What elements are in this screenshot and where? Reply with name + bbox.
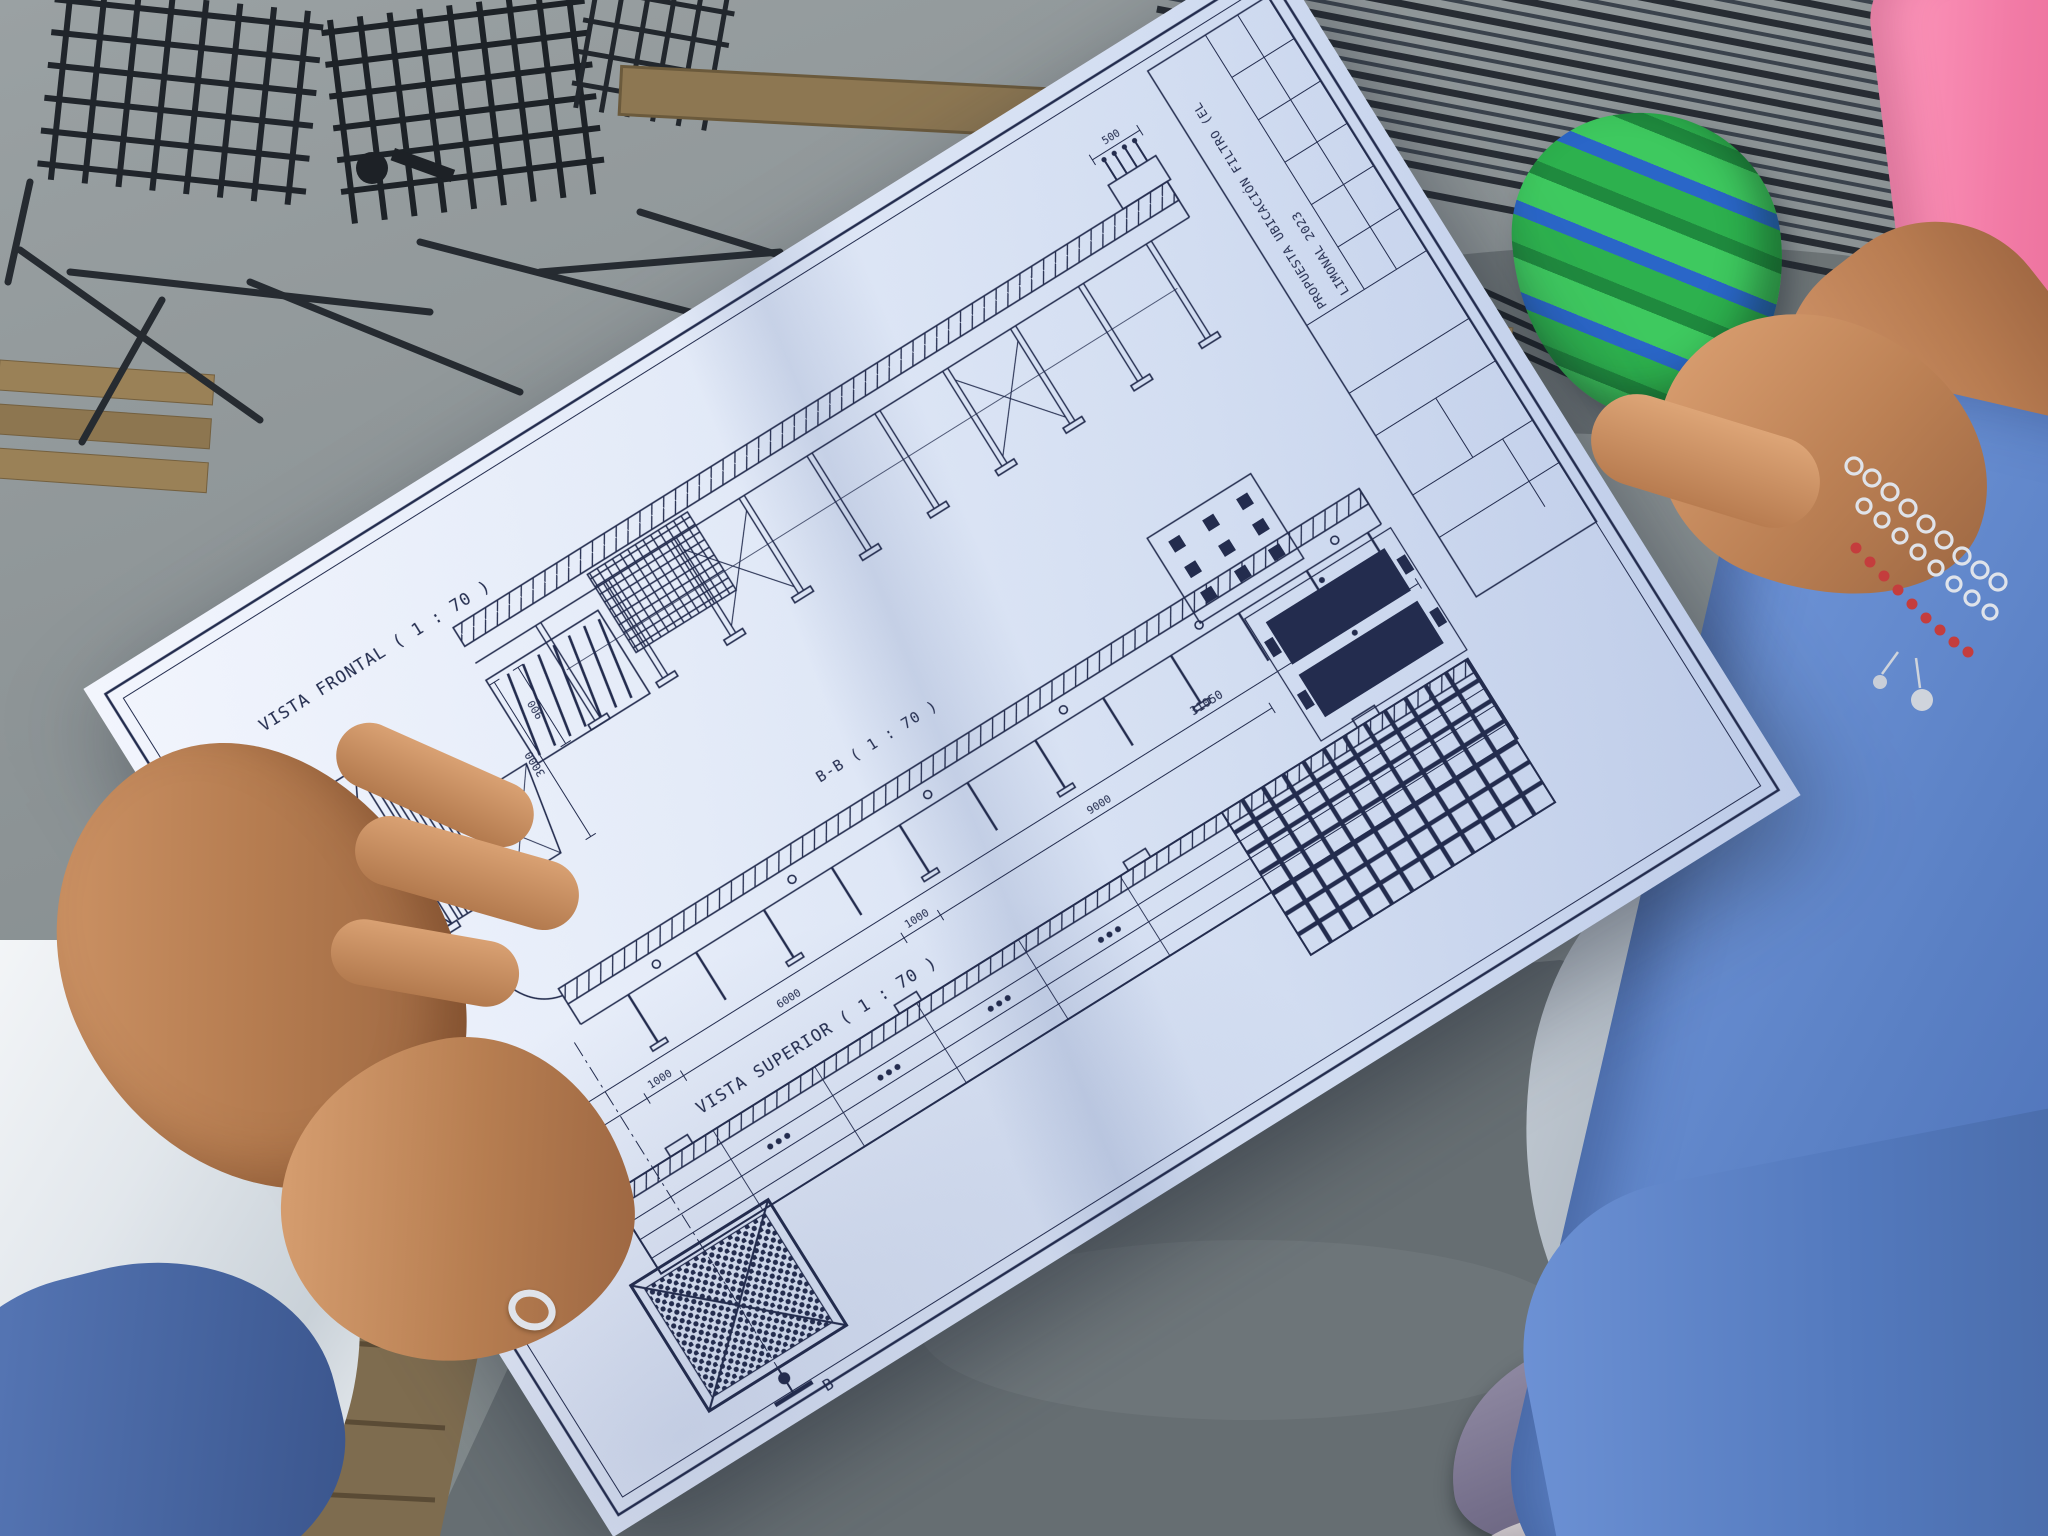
front-view-label: VISTA FRONTAL ( 1 : 70 ) [256, 576, 495, 736]
dim-chain-2: 1000 [645, 1067, 674, 1092]
construction-site-photo: PROPUESTA UBICACIÓN FILTRO (EL LIMONAL 2… [0, 0, 2048, 1536]
dim-chain-3: 6000 [774, 986, 803, 1011]
rebar-cage-a [36, 0, 325, 207]
title-block-project: PROPUESTA UBICACIÓN FILTRO (EL [1189, 100, 1329, 312]
section-marker-b: B [819, 1374, 837, 1395]
bracelets [1820, 420, 2048, 780]
pallet-left [0, 360, 214, 493]
rack-grid [1222, 660, 1555, 955]
dim-chain-4: 1000 [902, 906, 931, 931]
top-view-label: VISTA SUPERIOR ( 1 : 70 ) [693, 953, 942, 1119]
rebar-cage-b [320, 0, 608, 225]
clamp-tool [356, 152, 388, 184]
dim-chain-5: 9000 [1084, 792, 1113, 817]
bell-charm [1873, 652, 1933, 711]
silver-chain-bracelet [1846, 458, 2006, 619]
dim-front-end-value: 500 [1100, 127, 1122, 147]
